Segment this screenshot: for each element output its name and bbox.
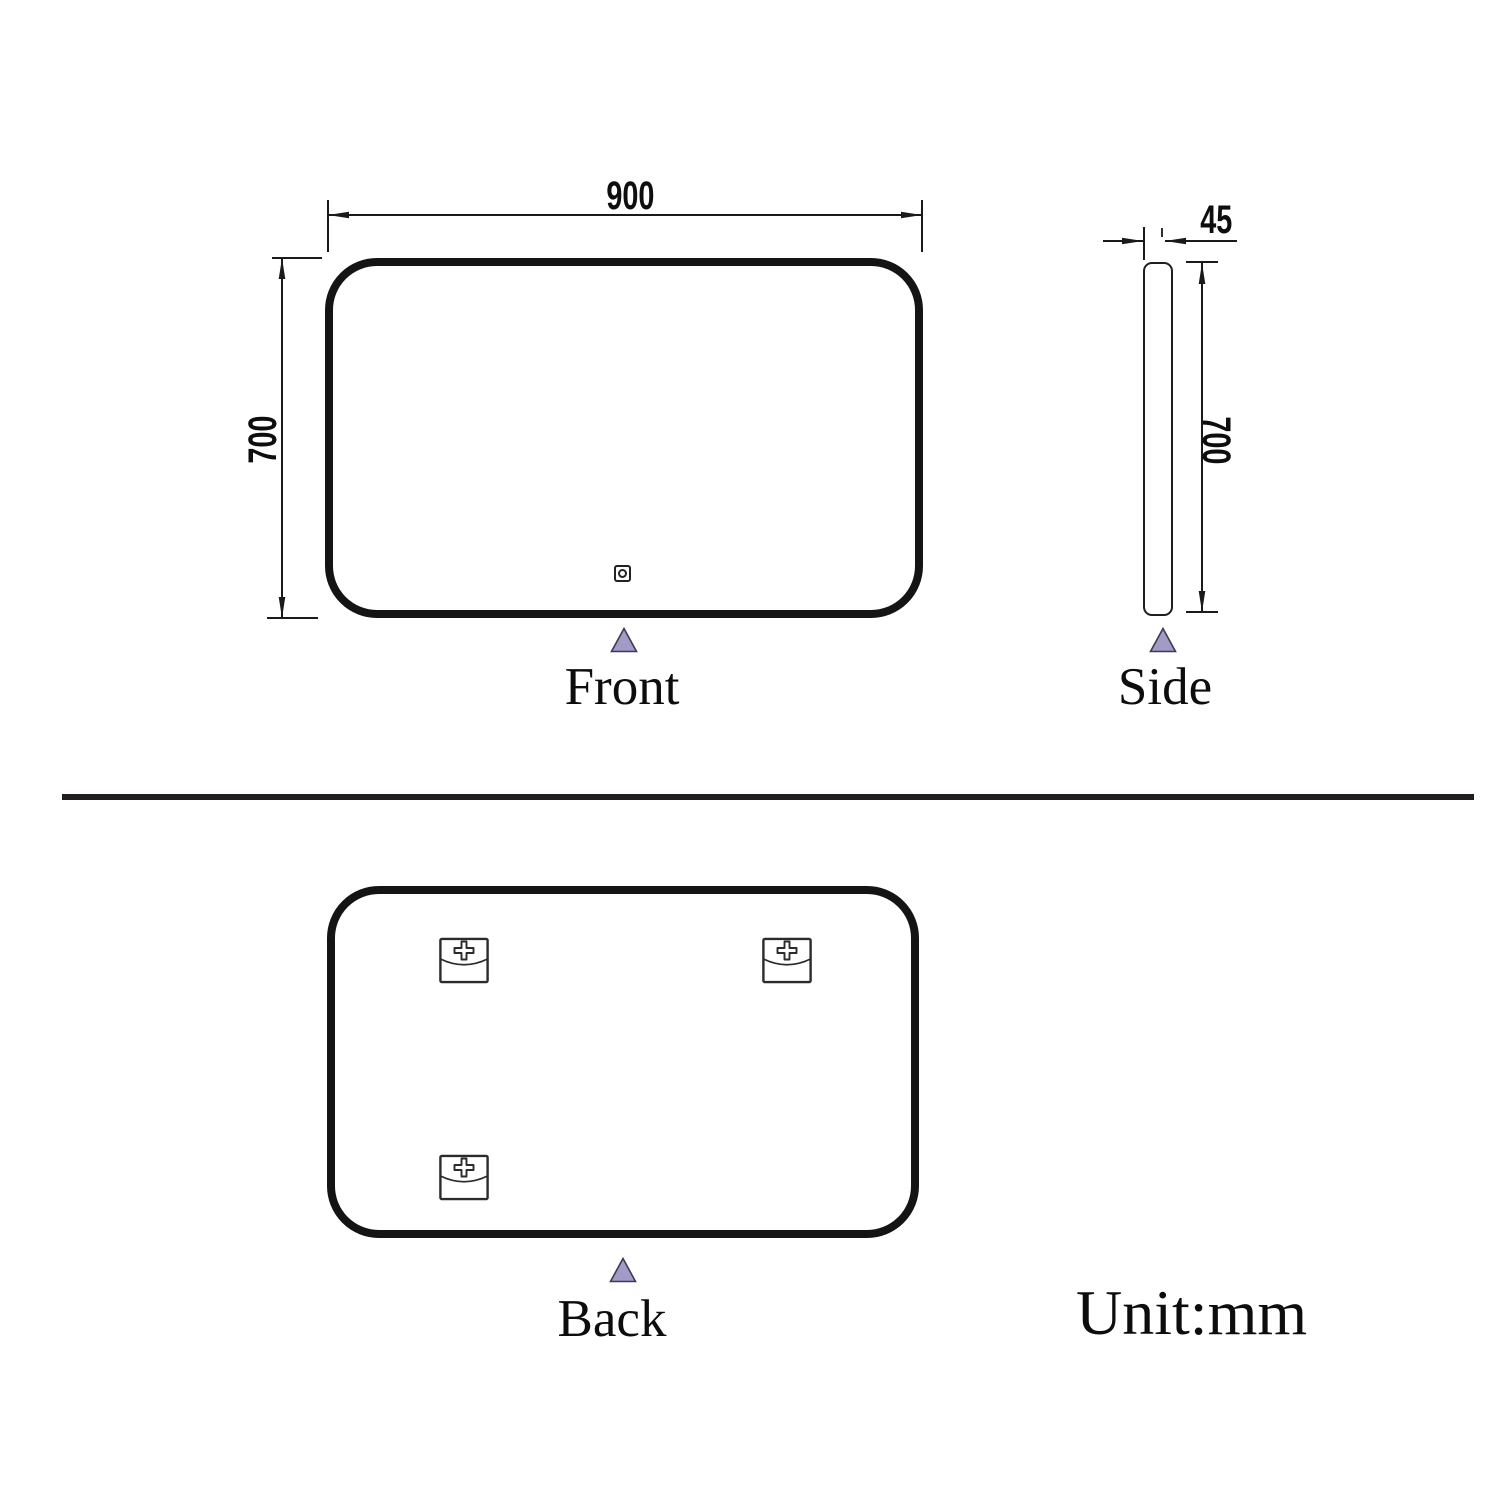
mounting-bracket-icon	[439, 937, 489, 984]
dimension-drawing-canvas: 900 700 Front 45 700 Side Back	[0, 0, 1500, 1500]
front-view-label: Front	[542, 658, 702, 716]
side-view-outline	[1143, 262, 1173, 616]
dimension-linework	[0, 0, 1500, 1500]
side-view-label: Side	[1085, 658, 1245, 716]
side-thickness-value: 45	[1200, 200, 1232, 240]
mounting-bracket-icon	[439, 1154, 489, 1201]
side-height-value: 700	[1196, 416, 1236, 464]
unit-note: Unit:mm	[1076, 1281, 1307, 1345]
touch-sensor-dot	[618, 569, 627, 578]
front-width-value: 900	[606, 176, 654, 216]
mounting-bracket-icon	[762, 937, 812, 984]
view-pointer-triangle-icon	[1149, 627, 1177, 653]
front-view-outline	[325, 258, 923, 618]
view-pointer-triangle-icon	[609, 1257, 637, 1283]
front-height-dimension: 700	[243, 390, 283, 490]
back-view-outline	[327, 886, 919, 1238]
section-divider	[62, 794, 1474, 800]
view-pointer-triangle-icon	[610, 627, 638, 653]
back-view-label: Back	[532, 1290, 692, 1348]
touch-sensor-icon	[614, 565, 631, 582]
front-width-dimension: 900	[575, 176, 685, 216]
side-height-dimension: 700	[1196, 390, 1236, 490]
front-height-value: 700	[243, 416, 283, 464]
side-thickness-dimension: 45	[1183, 200, 1249, 240]
